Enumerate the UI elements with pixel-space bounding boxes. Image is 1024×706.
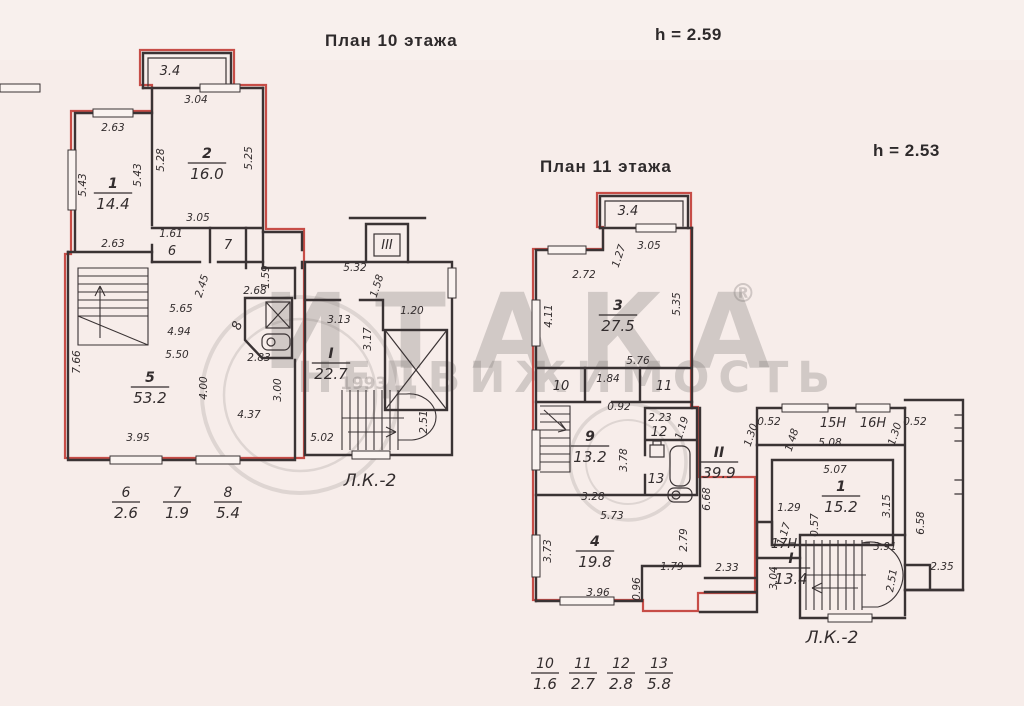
dimension-label: 3.13 (327, 314, 350, 326)
dimension-label: 2.23 (648, 412, 671, 424)
room-number-label: 2 (202, 146, 212, 162)
dimension-label: 5.65 (169, 303, 193, 315)
dimension-label: 2.33 (715, 562, 738, 574)
dimension-label: 3.15 (881, 494, 893, 518)
room-number-label: 1 (108, 176, 118, 192)
room-tag-label: 7 (224, 238, 233, 253)
dimension-label: 3.95 (126, 432, 150, 444)
room-tag-label: 3.4 (618, 204, 639, 219)
dimension-label: 7.66 (71, 350, 83, 374)
room-number-label: 9 (585, 429, 595, 445)
dimension-label: 3.91 (873, 541, 896, 553)
floorplan-scan: { "page": { "plan10_title": "План 10 эта… (0, 0, 1024, 706)
dimension-label: 3.05 (637, 240, 661, 252)
plan10-ceiling-height: h = 2.59 (655, 25, 722, 44)
dimension-label: 4.37 (237, 409, 261, 421)
room-tag-label: 3.4 (160, 64, 181, 79)
stairwell-label: Л.К.-2 (805, 628, 859, 648)
dimension-label: 2.83 (247, 352, 270, 364)
dimension-label: 0.96 (631, 577, 643, 601)
dimension-label: 5.35 (671, 292, 683, 316)
fraction-room-area: 2.7 (571, 675, 595, 693)
watermark-reg: ® (730, 279, 756, 309)
dimension-label: 3.28 (581, 491, 605, 503)
room-number-label: 3 (613, 298, 623, 314)
dimension-label: 3.96 (586, 587, 610, 599)
dimension-label: 5.76 (626, 355, 650, 367)
fraction-room-number: 7 (173, 485, 182, 501)
fraction-room-area: 1.6 (533, 675, 557, 693)
fraction-room-area: 2.6 (114, 504, 138, 522)
room-number-label: 4 (589, 534, 600, 550)
dimension-label: 4.94 (167, 326, 190, 338)
dimension-label: 3.04 (184, 94, 207, 106)
dimension-label: 2.63 (101, 122, 124, 134)
plan11-title: План 11 этажа (540, 157, 672, 176)
dimension-label: 5.43 (77, 173, 89, 196)
dimension-label: 2.35 (930, 561, 954, 573)
room-tag-label: III (381, 238, 393, 253)
dimension-label: 5.50 (165, 349, 189, 361)
dimension-label: 0.57 (809, 513, 821, 537)
room-tag-label: 11 (656, 379, 673, 394)
dimension-label: 4.11 (543, 304, 555, 327)
dimension-label: 2.68 (243, 285, 267, 297)
room-tag-label: 16Н (860, 416, 887, 431)
fraction-room-area: 5.4 (216, 504, 240, 522)
fraction-room-number: 12 (612, 656, 630, 672)
dimension-label: 1.79 (660, 561, 684, 573)
dimension-label: 1.29 (777, 502, 801, 514)
dimension-label: 5.43 (132, 163, 144, 186)
room-number-label: I (788, 551, 793, 567)
dimension-label: 3.05 (186, 212, 210, 224)
fraction-room-number: 13 (650, 656, 668, 672)
room-tag-label: 10 (553, 379, 570, 394)
dimension-label: 1.61 (159, 228, 182, 240)
dimension-label: 1.84 (596, 373, 619, 385)
room-area-label: 14.4 (96, 195, 129, 213)
dimension-label: 0.52 (903, 416, 927, 428)
room-area-label: 53.2 (133, 389, 166, 407)
room-tag-label: 12 (651, 425, 668, 440)
dimension-label: 5.73 (600, 510, 623, 522)
room-area-label: 27.5 (601, 317, 634, 335)
dimension-label: 3.17 (362, 327, 374, 351)
dimension-label: 0.92 (607, 401, 631, 413)
room-area-label: 39.9 (702, 464, 735, 482)
dimension-label: 3.04 (768, 566, 780, 589)
fraction-room-number: 10 (536, 656, 554, 672)
room-tag-label: 13 (648, 472, 665, 487)
room-area-label: 15.2 (824, 498, 857, 516)
dimension-label: 5.32 (343, 262, 367, 274)
room-number-label: 5 (145, 370, 155, 386)
dimension-label: 3.73 (542, 539, 554, 562)
dimension-label: 5.07 (823, 464, 847, 476)
dimension-label: 5.25 (243, 146, 255, 170)
room-area-label: 13.2 (573, 448, 606, 466)
stairwell-label: Л.К.-2 (343, 471, 397, 491)
dimension-label: 0.52 (757, 416, 781, 428)
room-area-label: 22.7 (314, 365, 348, 383)
dimension-label: 2.72 (572, 269, 596, 281)
fraction-room-area: 1.9 (165, 504, 189, 522)
dimension-label: 2.63 (101, 238, 124, 250)
floorplan-drawing: ИТАКА ® НЕДВИЖИМОСТЬ 1993 План 10 этажа … (0, 0, 1024, 706)
fraction-room-number: 6 (122, 485, 131, 501)
plan10-title: План 10 этажа (325, 31, 458, 50)
fraction-room-number: 11 (574, 656, 592, 672)
room-tag-label: 6 (168, 244, 176, 259)
room-area-label: 19.8 (578, 553, 611, 571)
fraction-room-number: 8 (224, 485, 233, 501)
dimension-label: 2.51 (418, 410, 430, 433)
room-area-label: 16.0 (190, 165, 223, 183)
fraction-room-area: 2.8 (609, 675, 633, 693)
room-number-label: I (328, 346, 333, 362)
dimension-label: 5.02 (310, 432, 334, 444)
room-tag-label: 15Н (820, 416, 847, 431)
dimension-label: 1.20 (400, 305, 424, 317)
dimension-label: 5.28 (155, 148, 167, 172)
dimension-label: 4.00 (198, 376, 210, 400)
room-number-label: II (714, 445, 724, 461)
dimension-label: 6.58 (915, 511, 927, 535)
dimension-label: 2.79 (678, 528, 690, 552)
plan11-ceiling-height: h = 2.53 (873, 141, 940, 160)
dimension-label: 3.78 (618, 448, 630, 472)
fraction-room-area: 5.8 (647, 675, 671, 693)
dimension-label: 5.08 (818, 437, 842, 449)
dimension-label: 6.68 (701, 487, 713, 511)
dimension-label: 3.00 (272, 378, 284, 402)
room-number-label: 1 (836, 479, 846, 495)
